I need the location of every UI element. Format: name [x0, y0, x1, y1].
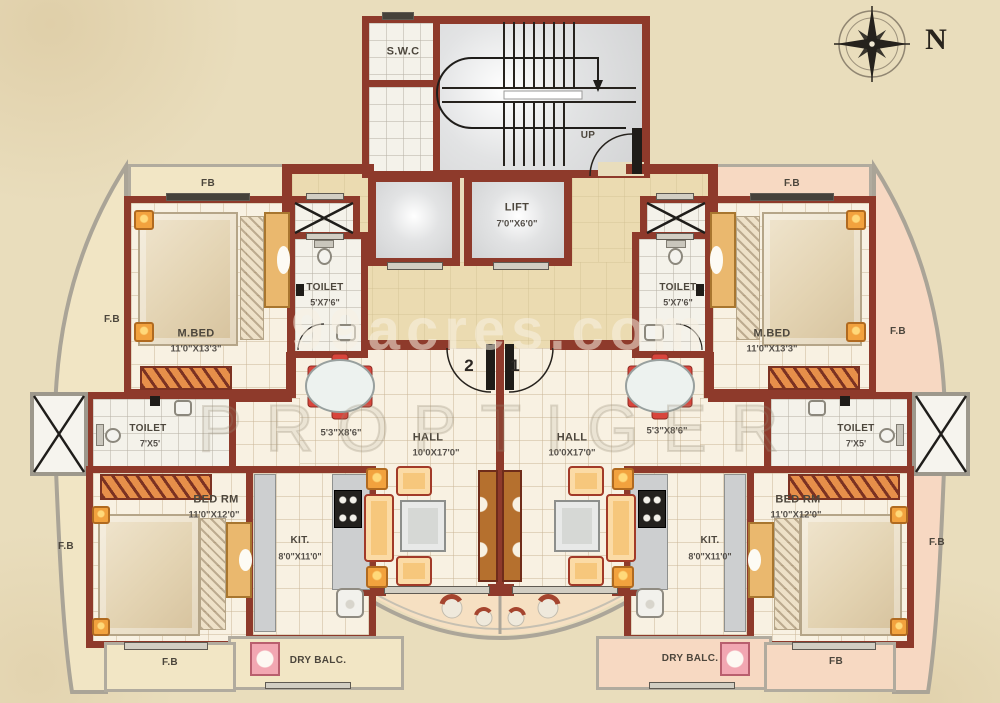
stool-hall-left-1	[366, 468, 388, 490]
lift-window	[493, 262, 549, 270]
balcony-rail-inner	[372, 592, 628, 629]
nightstand-bedrm-left-1	[92, 506, 110, 524]
floor-plan-canvas: S.W.C UP LIFT 7'0"X6'0" FB M.BED 11'0"X1…	[0, 0, 1000, 703]
wc-tank-toilet-attached-left	[314, 240, 334, 248]
label-drybalc-right: DRY BALC.	[662, 654, 719, 664]
nightstand-mbed-left-1	[134, 210, 154, 230]
drybalc-window-right	[649, 682, 735, 689]
duct-side-left	[30, 392, 88, 476]
wall-entrance-right	[550, 340, 638, 350]
swc-window	[382, 12, 414, 20]
label-swc: S.W.C	[387, 47, 420, 58]
label-kitchen-left-name: KIT.	[291, 536, 310, 546]
label-lift-name: LIFT	[505, 203, 529, 214]
label-kitchen-right-dims: 8'0"X11'0"	[688, 553, 731, 562]
shaft-window	[387, 262, 443, 270]
sofa-hall-left-long	[364, 494, 394, 562]
label-hall-right-name: HALL	[557, 433, 588, 444]
label-toilet-attached-right-name: TOILET	[659, 283, 696, 293]
wc-bowl-toilet-common-left	[105, 428, 121, 443]
wc-bowl-toilet-common-right	[879, 428, 895, 443]
sofa-hall-right-seat2	[568, 556, 604, 586]
label-hall-left-name: HALL	[413, 433, 444, 444]
label-hall-right-dims: 10'0X17'0"	[548, 448, 595, 458]
mbed-window-right	[750, 193, 834, 201]
label-bedrm-right-name: BED RM	[775, 495, 820, 506]
compass-icon	[834, 6, 910, 82]
wc-tank-toilet-common-right	[896, 424, 904, 446]
stool-hall-right-1	[612, 468, 634, 490]
sofa-hall-right-long	[606, 494, 636, 562]
entrance-door-leaf-left	[486, 344, 495, 390]
label-toilet-common-right-dims: 7'X5'	[846, 440, 866, 449]
hall-balcony-window-right	[512, 586, 618, 594]
duct-bar-right-bottom	[656, 233, 694, 240]
tv-unit-right	[502, 470, 522, 582]
hall-balcony-window-left	[384, 586, 490, 594]
label-toilet-attached-right-dims: 5'X7'6"	[663, 299, 693, 308]
basin-toilet-common-right	[808, 400, 826, 416]
label-fb-side-lower-left: F.B	[58, 542, 74, 552]
rug-bedrm-left	[200, 518, 226, 630]
kitchen-counter-left-a	[254, 474, 276, 632]
label-mbed-right-name: M.BED	[754, 329, 791, 340]
label-fb-side-lower-right: F.B	[929, 538, 945, 548]
rug-mbed-right	[736, 216, 760, 340]
wc-tank-toilet-common-left	[96, 424, 104, 446]
label-toilet-common-left-name: TOILET	[129, 424, 166, 434]
door-icon-toilet-common-left	[150, 396, 160, 406]
tv-unit-left	[478, 470, 498, 582]
label-fb-top-left: FB	[201, 179, 215, 189]
label-dining-right-dims: 5'3"X8'6"	[647, 426, 688, 436]
closet-mbed-right	[710, 212, 736, 308]
label-fb-bottom-right: FB	[829, 657, 843, 667]
rug-bedrm-right	[774, 518, 800, 630]
label-fb-bottom-left: F.B	[162, 658, 178, 668]
wc-bowl-toilet-attached-right	[668, 248, 683, 265]
closet-mbed-left	[264, 212, 290, 308]
sofa-hall-left-seat1	[396, 466, 432, 496]
passage-floor-left	[230, 398, 300, 468]
label-toilet-common-right-name: TOILET	[837, 424, 874, 434]
label-drybalc-left: DRY BALC.	[290, 656, 347, 666]
passage-floor-right	[700, 398, 770, 468]
duct-bar-right-top	[656, 193, 694, 200]
door-icon-toilet-common-right	[840, 396, 850, 406]
wall-passage-top-right	[708, 392, 768, 402]
washing-machine-left	[250, 642, 280, 676]
nightstand-bedrm-right-1	[890, 506, 908, 524]
label-dining-left-dims: 5'3"X8'6"	[321, 428, 362, 438]
label-hall-left-dims: 10'0X17'0"	[412, 448, 459, 458]
label-mbed-left-dims: 11'0"X13'3"	[170, 344, 221, 354]
door-icon-toilet-attached-right	[696, 284, 704, 296]
wall-passage-top-left	[232, 392, 292, 402]
balcony-floor	[370, 594, 630, 635]
nightstand-bedrm-right-2	[890, 618, 908, 636]
center-table-right	[554, 500, 600, 552]
wardrobe-mbed-right	[768, 366, 860, 390]
door-icon-toilet-attached-left	[296, 284, 304, 296]
label-toilet-attached-left-dims: 5'X7'6"	[310, 299, 340, 308]
label-kitchen-right-name: KIT.	[701, 536, 720, 546]
basin-toilet-common-left	[174, 400, 192, 416]
sofa-hall-left-seat2	[396, 556, 432, 586]
washing-machine-right	[720, 642, 750, 676]
balcony-plants	[442, 597, 558, 626]
sink-left	[336, 588, 364, 618]
label-flat-number-left: 2	[464, 356, 473, 376]
label-fb-side-upper-left: F.B	[104, 315, 120, 325]
label-bedrm-left-dims: 11'0"X12'0"	[188, 510, 239, 520]
stove-left	[334, 490, 362, 528]
sofa-hall-right-seat1	[568, 466, 604, 496]
label-up: UP	[581, 131, 596, 141]
center-table-left	[400, 500, 446, 552]
label-fb-top-right: F.B	[784, 179, 800, 189]
label-bedrm-left-name: BED RM	[193, 495, 238, 506]
balcony-rail-outer	[360, 594, 640, 638]
closet-bedrm-right	[748, 522, 774, 598]
basin-toilet-attached-left	[336, 324, 356, 341]
stool-hall-right-2	[612, 566, 634, 588]
stove-right	[638, 490, 666, 528]
drybalc-window-left	[265, 682, 351, 689]
label-lift-dims: 7'0"X6'0"	[497, 219, 538, 229]
label-mbed-left-name: M.BED	[178, 329, 215, 340]
wc-tank-toilet-attached-right	[666, 240, 686, 248]
bedrm-window-right	[792, 642, 876, 650]
nightstand-mbed-right-2	[846, 322, 866, 342]
sink-right	[636, 588, 664, 618]
stair-door-leaf	[632, 128, 642, 174]
label-flat-number-right: 1	[510, 356, 519, 376]
wall-entrance-left	[362, 340, 450, 350]
label-bedrm-right-dims: 11'0"X12'0"	[770, 510, 821, 520]
rug-mbed-left	[240, 216, 264, 340]
bedrm-window-left	[124, 642, 208, 650]
label-toilet-common-left-dims: 7'X5'	[140, 440, 160, 449]
bed-bedrm-left	[98, 514, 200, 636]
shaft-room	[368, 174, 460, 266]
duct-side-right	[912, 392, 970, 476]
nightstand-mbed-left-2	[134, 322, 154, 342]
nightstand-mbed-right-1	[846, 210, 866, 230]
basin-toilet-attached-right	[644, 324, 664, 341]
wall-hall-bottom-center	[488, 584, 514, 596]
wardrobe-mbed-left	[140, 366, 232, 390]
label-mbed-right-dims: 11'0"X13'3"	[746, 344, 797, 354]
nightstand-bedrm-left-2	[92, 618, 110, 636]
bed-bedrm-right	[800, 514, 902, 636]
stool-hall-left-2	[366, 566, 388, 588]
duct-bar-left-top	[306, 193, 344, 200]
duct-bar-left-bottom	[306, 233, 344, 240]
wall-lobby-top-left	[286, 164, 374, 174]
label-toilet-attached-left-name: TOILET	[306, 283, 343, 293]
mbed-window-left	[166, 193, 250, 201]
label-kitchen-left-dims: 8'0"X11'0"	[278, 553, 321, 562]
closet-bedrm-left	[226, 522, 252, 598]
label-fb-side-upper-right: F.B	[890, 327, 906, 337]
wc-bowl-toilet-attached-left	[317, 248, 332, 265]
compass-north-label: N	[925, 23, 947, 57]
